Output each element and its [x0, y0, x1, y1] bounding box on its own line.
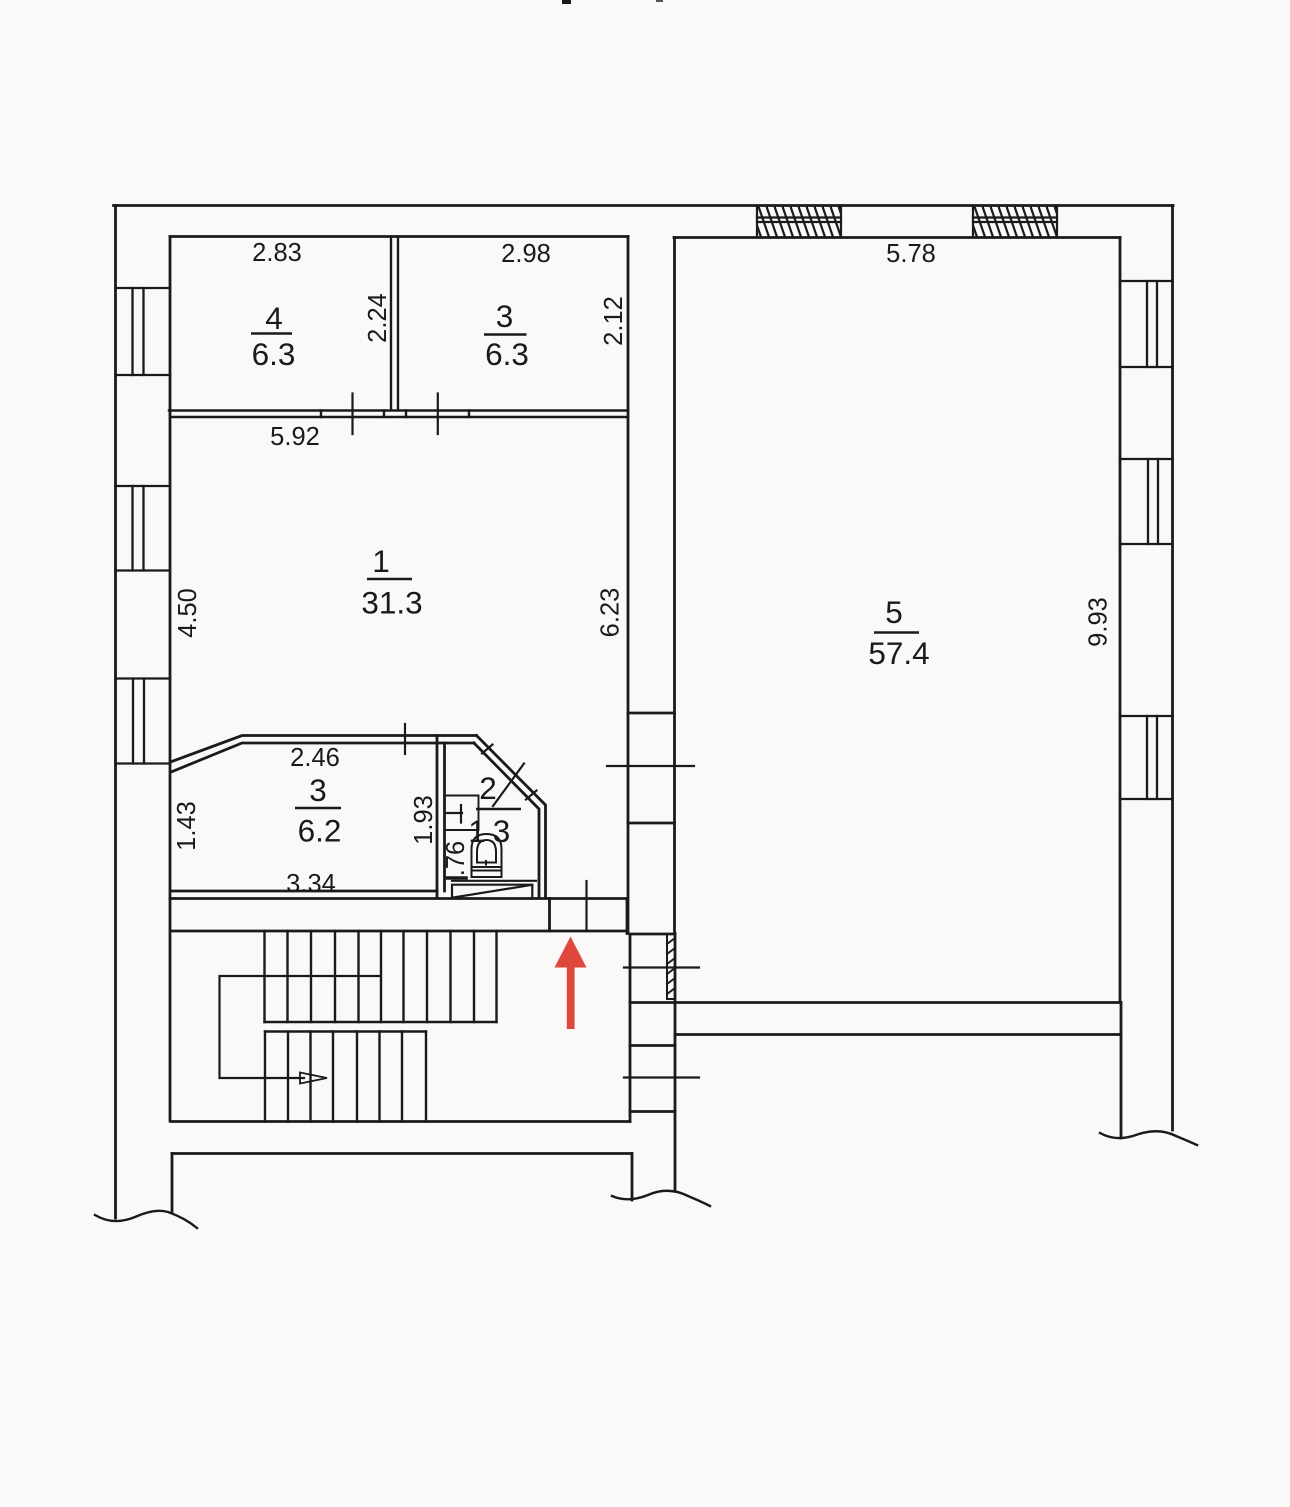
svg-text:2.46: 2.46: [290, 744, 340, 772]
svg-text:2.83: 2.83: [252, 239, 302, 267]
svg-text:3: 3: [493, 813, 511, 849]
svg-text:9.93: 9.93: [1085, 597, 1113, 647]
svg-text:4.50: 4.50: [174, 588, 202, 638]
svg-text:2.98: 2.98: [501, 240, 551, 268]
svg-text:1: 1: [468, 813, 486, 849]
svg-text:3.34: 3.34: [286, 870, 336, 898]
svg-text:5.78: 5.78: [886, 240, 936, 268]
svg-text:6.3: 6.3: [252, 336, 296, 372]
svg-text:3: 3: [309, 772, 327, 808]
svg-text:.76: .76: [442, 841, 470, 876]
svg-text:31.3: 31.3: [361, 585, 422, 621]
svg-text:6.3: 6.3: [485, 336, 529, 372]
svg-text:2.12: 2.12: [600, 296, 628, 346]
svg-text:4: 4: [265, 300, 283, 336]
svg-text:1: 1: [372, 543, 390, 579]
svg-text:5.92: 5.92: [270, 423, 320, 451]
svg-text:57.4: 57.4: [868, 635, 929, 671]
svg-text:3: 3: [496, 298, 514, 334]
svg-text:5: 5: [885, 594, 903, 630]
svg-text:1.43: 1.43: [173, 801, 201, 851]
svg-text:6.2: 6.2: [298, 813, 342, 849]
svg-text:1.93: 1.93: [410, 795, 438, 845]
svg-text:6.23: 6.23: [597, 588, 625, 638]
svg-text:2: 2: [479, 770, 497, 806]
svg-text:2.24: 2.24: [364, 293, 392, 343]
